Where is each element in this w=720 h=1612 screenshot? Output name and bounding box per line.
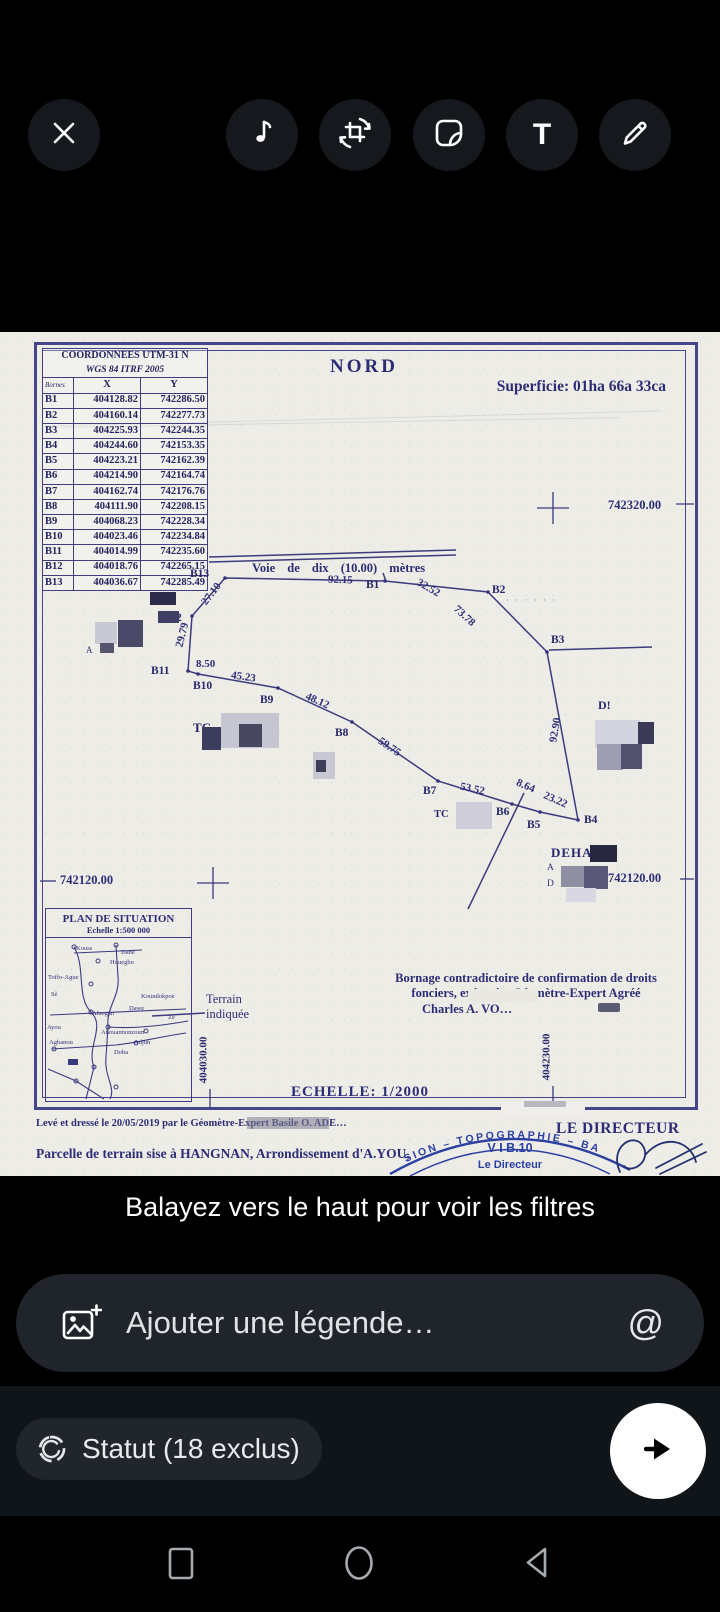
add-media-icon[interactable] (60, 1303, 102, 1343)
photo-preview-survey-document[interactable]: COORDONNEES UTM-31 N WGS 84 ITRF 2005 Bo… (0, 332, 720, 1176)
send-button[interactable] (610, 1403, 706, 1499)
stray-label-tc-mid: TC (434, 809, 449, 820)
redaction-block (150, 592, 176, 605)
whatsapp-media-editor: { "editor": { "toolbar": { "close_icon":… (0, 0, 720, 1612)
plan-situation-scale: Echelle 1:500 000 (46, 925, 191, 938)
redaction-block (566, 888, 596, 902)
point-label-b9: B9 (260, 694, 273, 706)
point-label-b7: B7 (423, 785, 436, 797)
redaction-block (456, 802, 492, 829)
status-recipient-chip[interactable]: Statut (18 exclus) (16, 1418, 322, 1480)
point-label-b4: B4 (584, 814, 597, 826)
music-icon (247, 117, 277, 154)
distance-b10-b11: 8.50 (196, 658, 215, 670)
send-icon (640, 1431, 676, 1472)
caption-input[interactable] (124, 1304, 627, 1342)
redaction-block (158, 611, 179, 623)
back-button[interactable] (523, 1546, 549, 1584)
android-navbar (0, 1516, 720, 1612)
sticker-icon (433, 117, 465, 154)
draw-icon (620, 118, 650, 153)
redaction-block (202, 727, 221, 750)
sticker-button[interactable] (413, 99, 485, 171)
director-signature (598, 1128, 716, 1176)
point-label-b2: B2 (492, 584, 505, 596)
text-icon: T (533, 118, 551, 152)
mention-icon[interactable]: @ (627, 1302, 664, 1344)
svg-text:V I B.10: V I B.10 (487, 1141, 532, 1155)
redaction-block (597, 744, 623, 770)
redaction-block (118, 620, 143, 647)
plan-situation-title: PLAN DE SITUATION (46, 913, 191, 925)
terrain-note: Terrain indiquée (206, 992, 249, 1022)
redaction-block (621, 744, 642, 769)
svg-text:Le Directeur: Le Directeur (478, 1159, 543, 1171)
add-text-button[interactable]: T (506, 99, 578, 171)
plan-de-situation-box: PLAN DE SITUATION Echelle 1:500 000 Kous… (45, 908, 192, 1102)
redaction-blur (468, 989, 538, 1002)
stray-label-d: D! (598, 698, 611, 713)
redaction-smudge (524, 1101, 566, 1107)
point-label-b11: B11 (151, 665, 170, 677)
redaction-block (598, 1003, 620, 1012)
crop-rotate-button[interactable] (319, 99, 391, 171)
draw-button[interactable] (599, 99, 671, 171)
echelle-label: ECHELLE: 1/2000 (0, 1084, 720, 1101)
redaction-block (239, 724, 262, 747)
redaction-name (247, 1117, 329, 1129)
redaction-block (638, 722, 654, 744)
point-label-b8: B8 (335, 727, 348, 739)
stray-dots: · · · · · · (506, 596, 557, 605)
redaction-block (584, 866, 608, 889)
point-label-b1: B1 (366, 579, 379, 591)
point-label-b6: B6 (496, 806, 509, 818)
swipe-filters-hint: Balayez vers le haut pour voir les filtr… (0, 1192, 720, 1223)
point-label-b13: B13 (190, 568, 209, 580)
redaction-block (100, 643, 114, 653)
redaction-block (561, 866, 585, 887)
stray-letter-d2: D (547, 880, 554, 890)
send-panel: Statut (18 exclus) (0, 1386, 720, 1516)
point-label-b5: B5 (527, 819, 540, 831)
caption-bar[interactable]: @ (16, 1274, 704, 1372)
close-icon (49, 118, 79, 153)
home-button[interactable] (344, 1545, 374, 1586)
redaction-block (95, 622, 117, 644)
redaction-block (316, 760, 326, 772)
redaction-block (590, 845, 617, 862)
close-button[interactable] (28, 99, 100, 171)
crop-rotate-icon (338, 116, 372, 155)
footer-parcel-line: Parcelle de terrain sise à HANGNAN, Arro… (36, 1146, 410, 1162)
add-music-button[interactable] (226, 99, 298, 171)
distance-b13-b1: 92.15 (328, 574, 353, 587)
stray-letter-a: A (86, 646, 93, 655)
stray-letter-a2: A (547, 864, 554, 874)
status-recipient-label: Statut (18 exclus) (82, 1433, 300, 1465)
point-label-b10: B10 (193, 680, 212, 692)
recents-button[interactable] (168, 1547, 194, 1585)
stray-label-deha: DEHA (551, 845, 593, 861)
point-label-b3: B3 (551, 634, 564, 646)
status-ring-icon (36, 1433, 68, 1465)
